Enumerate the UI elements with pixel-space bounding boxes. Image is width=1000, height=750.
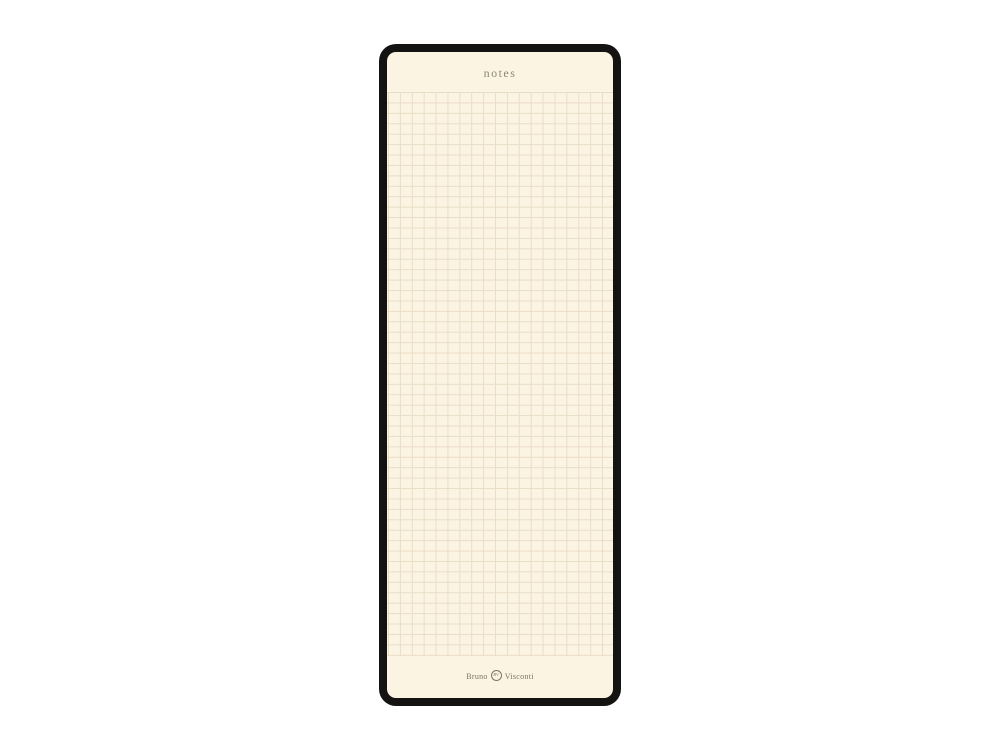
brand-second-word: Visconti <box>505 671 534 683</box>
brand-monogram: BV <box>493 673 498 678</box>
notepad-page: notes Bruno BV Visconti <box>387 52 613 698</box>
notepad-frame: notes Bruno BV Visconti <box>379 44 621 706</box>
brand-emblem-icon: BV <box>491 670 502 681</box>
grid-ruling <box>387 92 613 656</box>
page-title: notes <box>387 66 613 80</box>
product-scene: notes Bruno BV Visconti <box>0 0 1000 750</box>
brand-logo: Bruno BV Visconti <box>387 671 613 683</box>
brand-first-word: Bruno <box>466 671 488 683</box>
